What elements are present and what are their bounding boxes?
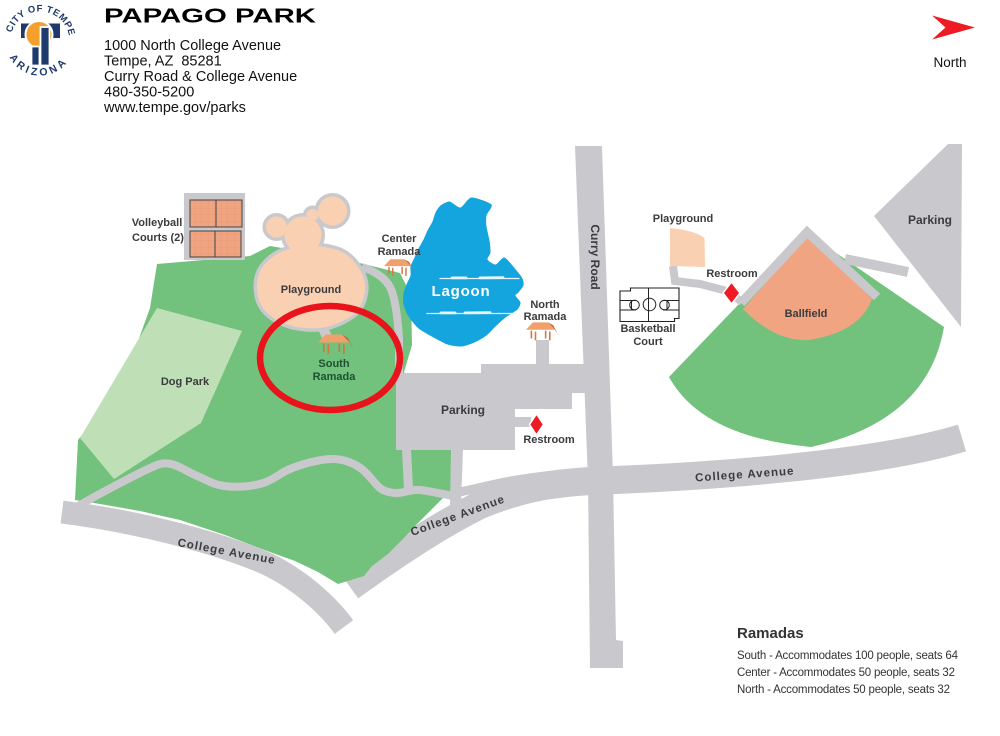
svg-text:Courts (2): Courts (2) (132, 232, 184, 244)
svg-text:Ramada: Ramada (313, 371, 357, 383)
svg-text:Tempe, AZ 85281: Tempe, AZ 85281 (104, 54, 222, 70)
svg-text:www.tempe.gov/parks: www.tempe.gov/parks (103, 100, 246, 116)
svg-text:Center - Accommodates 50 peopl: Center - Accommodates 50 people, seats 3… (737, 667, 955, 679)
svg-text:Lagoon: Lagoon (432, 283, 491, 300)
svg-text:Volleyball: Volleyball (132, 217, 183, 229)
svg-text:Ramada: Ramada (378, 246, 422, 258)
svg-text:Court: Court (633, 336, 663, 348)
svg-text:Basketball: Basketball (620, 323, 675, 335)
svg-text:North: North (933, 55, 966, 70)
svg-text:Curry Road: Curry Road (588, 224, 602, 289)
svg-text:Center: Center (382, 233, 418, 245)
svg-text:Parking: Parking (908, 213, 952, 227)
svg-text:Ramada: Ramada (524, 311, 568, 323)
svg-text:North: North (530, 299, 560, 311)
svg-text:Playground: Playground (281, 284, 342, 296)
svg-text:PAPAGO PARK: PAPAGO PARK (104, 5, 316, 28)
svg-text:Playground: Playground (653, 213, 714, 225)
svg-text:Restroom: Restroom (706, 268, 758, 280)
svg-text:Parking: Parking (441, 403, 485, 417)
svg-text:Restroom: Restroom (523, 434, 575, 446)
svg-text:Ballfield: Ballfield (785, 308, 828, 320)
svg-text:Ramadas: Ramadas (737, 625, 804, 642)
svg-text:South: South (318, 358, 349, 370)
svg-text:South - Accommodates 100 peopl: South - Accommodates 100 people, seats 6… (737, 650, 959, 662)
svg-text:1000 North College Avenue: 1000 North College Avenue (104, 38, 281, 54)
svg-text:North - Accommodates 50 people: North - Accommodates 50 people, seats 32 (737, 684, 950, 696)
svg-text:Curry Road & College Avenue: Curry Road & College Avenue (104, 69, 297, 85)
svg-text:Dog Park: Dog Park (161, 376, 210, 388)
svg-text:480-350-5200: 480-350-5200 (104, 85, 194, 101)
